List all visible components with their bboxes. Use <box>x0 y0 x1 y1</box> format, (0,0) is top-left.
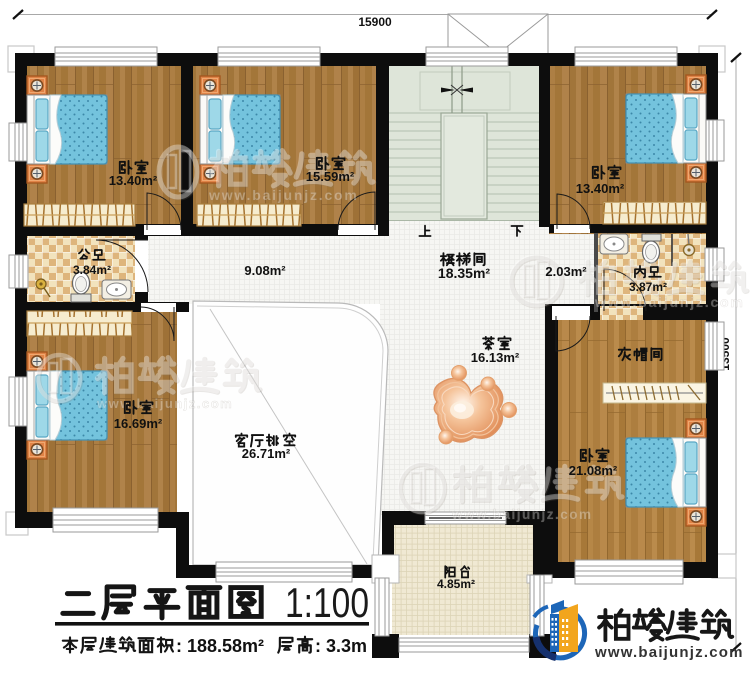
svg-text:www.baijunjz.com: www.baijunjz.com <box>594 294 745 310</box>
svg-text:13.40m²: 13.40m² <box>576 181 625 196</box>
svg-text:: 188.58m²: : 188.58m² <box>176 636 264 656</box>
svg-text:www.baijunjz.com: www.baijunjz.com <box>96 396 233 411</box>
svg-text:2.03m²: 2.03m² <box>545 264 587 279</box>
svg-text:15.59m²: 15.59m² <box>306 169 355 184</box>
svg-text:3.84m²: 3.84m² <box>73 263 111 277</box>
svg-text:13.40m²: 13.40m² <box>109 173 158 188</box>
svg-text:4.85m²: 4.85m² <box>437 577 475 591</box>
svg-text:18.35m²: 18.35m² <box>438 265 490 281</box>
svg-text:16.69m²: 16.69m² <box>114 416 163 431</box>
svg-text:1:100: 1:100 <box>285 579 369 626</box>
svg-text:www.baijunjz.com: www.baijunjz.com <box>208 187 359 203</box>
svg-text:9.08m²: 9.08m² <box>244 263 286 278</box>
svg-text:3.87m²: 3.87m² <box>629 280 667 294</box>
svg-text:15900: 15900 <box>358 15 392 29</box>
svg-text:21.08m²: 21.08m² <box>569 463 618 478</box>
svg-text:www.baijunjz.com: www.baijunjz.com <box>451 507 593 522</box>
svg-text:16.13m²: 16.13m² <box>471 350 520 365</box>
svg-text:www.baijunjz.com: www.baijunjz.com <box>594 644 744 661</box>
svg-text:26.71m²: 26.71m² <box>242 446 291 461</box>
svg-text:: 3.3m: : 3.3m <box>315 636 367 656</box>
